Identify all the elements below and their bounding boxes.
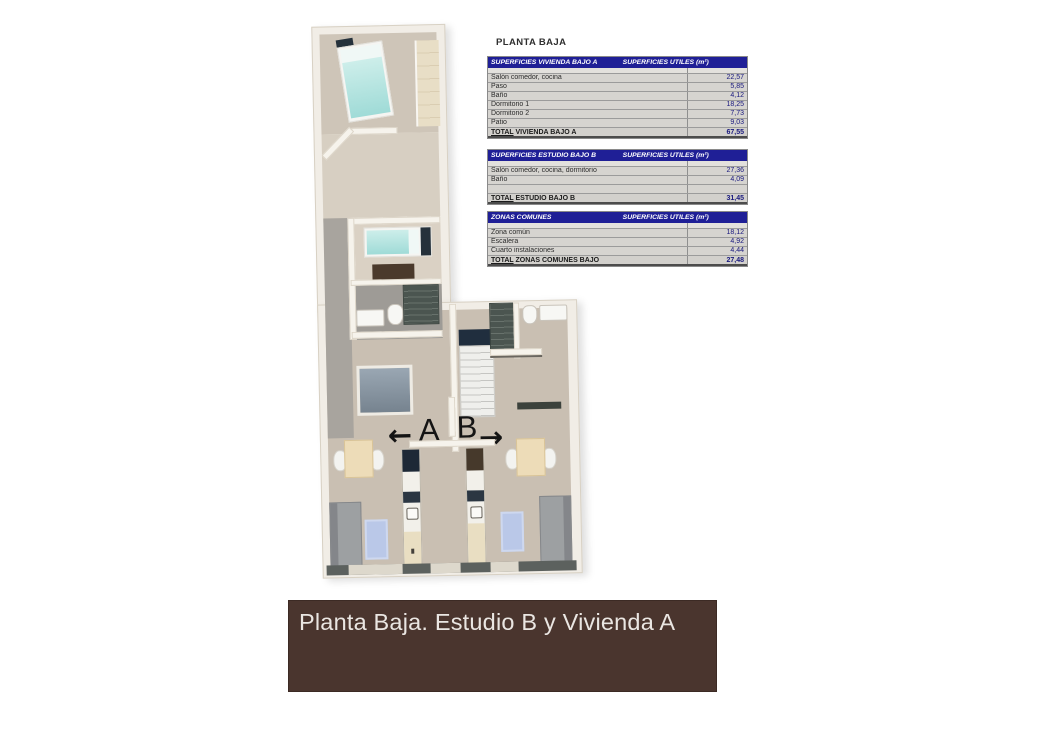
- radiator: [517, 402, 561, 410]
- table-header: SUPERFICIES ESTUDIO BAJO B SUPERFICIES U…: [488, 150, 747, 161]
- cooktop: [403, 492, 420, 503]
- page-title: PLANTA BAJA: [496, 37, 566, 48]
- oven: [406, 508, 418, 520]
- apartment-b-label: B: [456, 411, 477, 442]
- headboard: [420, 227, 431, 255]
- table-header-name: ZONAS COMUNES: [491, 214, 551, 221]
- table-header-units: SUPERFICIES UTILES (m²): [623, 57, 709, 68]
- table-header-units: SUPERFICIES UTILES (m²): [623, 150, 709, 161]
- patio: [356, 365, 413, 416]
- window-opening: [490, 561, 518, 572]
- bed-pillow: [409, 230, 420, 254]
- table-total-row: TOTAL VIVIENDA BAJO A 67,55: [488, 128, 747, 138]
- area-label: Dormitorio 1: [488, 101, 687, 109]
- area-label: Dormitorio 2: [488, 110, 687, 118]
- bathroom-sink: [539, 304, 567, 321]
- total-value: 67,55: [687, 128, 747, 136]
- sofa-back: [330, 503, 338, 567]
- bed-duvet: [342, 57, 390, 119]
- area-label: Baño: [488, 92, 687, 100]
- table-row: Escalera4,92: [488, 238, 747, 247]
- area-label: Salón comedor, cocina, dormitorio: [488, 167, 687, 175]
- area-label: Zona común: [488, 229, 687, 237]
- table-row: [488, 185, 747, 194]
- table-superficies-vivienda-a: SUPERFICIES VIVIENDA BAJO A SUPERFICIES …: [487, 56, 748, 139]
- table-header: SUPERFICIES VIVIENDA BAJO A SUPERFICIES …: [488, 57, 747, 68]
- installations-stairs: [403, 284, 440, 325]
- sofa-a: [329, 502, 362, 569]
- area-label: Cuarto instalaciones: [488, 247, 687, 255]
- rug-a: [365, 519, 389, 559]
- area-label: Salón comedor, cocina: [488, 74, 687, 82]
- kitchen-island-b: [465, 447, 487, 569]
- table-total-row: TOTAL ESTUDIO BAJO B 31,45: [488, 194, 747, 204]
- fridge: [402, 450, 419, 472]
- area-value: 27,36: [687, 167, 747, 175]
- area-label: Escalera: [488, 238, 687, 246]
- toilet: [387, 304, 403, 325]
- area-value: 9,03: [687, 119, 747, 127]
- table-row: Dormitorio 118,25: [488, 101, 747, 110]
- oven: [470, 506, 482, 518]
- total-value: 27,48: [687, 256, 747, 264]
- area-label: Paso: [488, 83, 687, 91]
- rug-b: [500, 511, 524, 551]
- dresser: [372, 264, 414, 280]
- wardrobe-closet: [415, 40, 441, 126]
- sofa-back: [563, 496, 571, 560]
- area-value: 18,25: [687, 101, 747, 109]
- sofa-b: [539, 495, 572, 562]
- table-header-name: SUPERFICIES VIVIENDA BAJO A: [491, 59, 597, 66]
- table-row: Baño4,12: [488, 92, 747, 101]
- total-value: 31,45: [687, 194, 747, 202]
- stair-landing: [459, 329, 492, 346]
- area-value: [687, 185, 747, 193]
- area-value: 4,92: [687, 238, 747, 246]
- bed-dormitorio-2: [363, 226, 432, 257]
- plan-caption: Planta Baja. Estudio B y Vivienda A: [289, 601, 716, 636]
- title-bar: Planta Baja. Estudio B y Vivienda A: [288, 600, 717, 692]
- area-value: 4,09: [687, 176, 747, 184]
- fridge: [466, 448, 483, 470]
- table-total-row: TOTAL ZONAS COMUNES BAJO 27,48: [488, 256, 747, 266]
- area-label: Baño: [488, 176, 687, 184]
- table-superficies-estudio-b: SUPERFICIES ESTUDIO BAJO B SUPERFICIES U…: [487, 149, 748, 205]
- bathroom-sink: [356, 309, 384, 327]
- table-row: Zona común18,12: [488, 229, 747, 238]
- table-row: Salón comedor, cocina22,57: [488, 74, 747, 83]
- table-row: Baño4,09: [488, 176, 747, 185]
- area-value: 4,44: [687, 247, 747, 255]
- table-row: Paso5,85: [488, 83, 747, 92]
- wall-under-bath-b: [490, 348, 542, 358]
- total-label: TOTAL ESTUDIO BAJO B: [488, 194, 687, 202]
- cabinet-handle: [411, 549, 414, 554]
- kitchen-island-a: [401, 449, 423, 571]
- table-header-units: SUPERFICIES UTILES (m²): [623, 212, 709, 223]
- window-opening: [431, 563, 461, 574]
- table-row: Cuarto instalaciones4,44: [488, 247, 747, 256]
- wall-entry-split: [448, 397, 456, 437]
- table-header-name: SUPERFICIES ESTUDIO BAJO B: [491, 152, 596, 159]
- area-value: 22,57: [687, 74, 747, 82]
- area-value: 18,12: [687, 229, 747, 237]
- total-label: TOTAL VIVIENDA BAJO A: [488, 128, 687, 136]
- area-value: 4,12: [687, 92, 747, 100]
- table-row: Salón comedor, cocina, dormitorio27,36: [488, 167, 747, 176]
- total-label: TOTAL ZONAS COMUNES BAJO: [488, 256, 687, 264]
- table-header: ZONAS COMUNES SUPERFICIES UTILES (m²): [488, 212, 747, 223]
- area-label: Patio: [488, 119, 687, 127]
- cooktop: [467, 490, 484, 501]
- area-value: 5,85: [687, 83, 747, 91]
- window-opening: [349, 564, 403, 575]
- table-row: Patio9,03: [488, 119, 747, 128]
- upper-stair-flight: [489, 303, 516, 354]
- area-label: [488, 185, 687, 193]
- dining-table-a: [344, 440, 374, 479]
- toilet: [522, 305, 537, 324]
- area-tables: SUPERFICIES VIVIENDA BAJO A SUPERFICIES …: [487, 56, 748, 267]
- area-value: 7,73: [687, 110, 747, 118]
- dining-table-b: [516, 438, 546, 477]
- wall-angled-horizontal: [351, 127, 397, 135]
- table-row: Dormitorio 27,73: [488, 110, 747, 119]
- table-zonas-comunes: ZONAS COMUNES SUPERFICIES UTILES (m²) Zo…: [487, 211, 748, 267]
- bed-duvet: [367, 230, 409, 255]
